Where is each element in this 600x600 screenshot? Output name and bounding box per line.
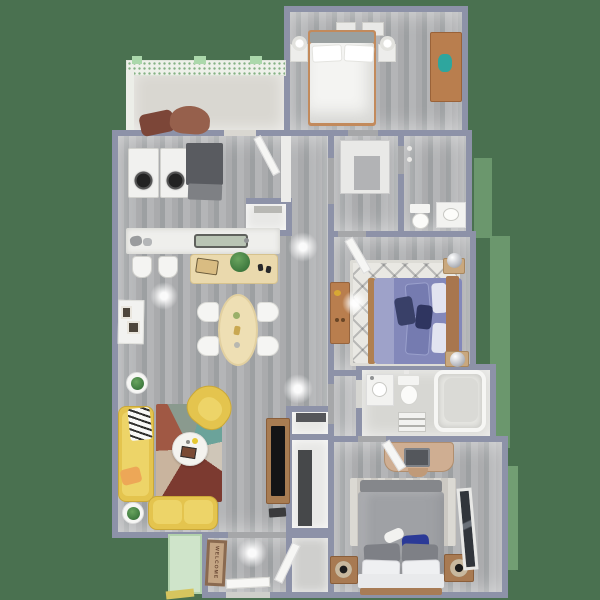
- fridge: [186, 143, 223, 185]
- bath1-sink: [443, 208, 459, 221]
- pantry-shelf: [254, 206, 282, 213]
- b3-foot-ruffle: [358, 574, 444, 588]
- entry-step-yellow: [166, 589, 195, 600]
- dining-chair-ne: [257, 302, 279, 322]
- cutting-board: [195, 258, 219, 276]
- bath2-toilet-tank: [398, 376, 419, 385]
- centerpiece-3: [234, 342, 240, 348]
- balcony-door-opening: [224, 130, 256, 136]
- sofa-throw: [127, 407, 152, 441]
- fridge-front: [188, 183, 223, 200]
- kitchen-faucet: [244, 238, 249, 243]
- b2-dresser-knob-2: [341, 318, 345, 322]
- desk-frame-1: [121, 306, 132, 319]
- bath2-toilet-bowl: [400, 385, 418, 405]
- balcony-screen-wall: [126, 60, 286, 76]
- island-plant: [230, 252, 250, 272]
- welcome-mat: WELCOME: [205, 540, 227, 587]
- balcony-rail-left: [126, 70, 134, 130]
- b1-lamp-right: [380, 36, 395, 51]
- centerpiece-1: [233, 312, 240, 319]
- closet-a-shelf: [296, 413, 326, 422]
- b1-pillow-right: [344, 44, 375, 63]
- kitchen-sink: [194, 234, 248, 248]
- dining-chair-sw: [197, 336, 219, 356]
- dryer-door: [165, 170, 186, 191]
- linen-shelf-notch: [354, 156, 380, 190]
- closet-b-strip: [298, 450, 312, 526]
- stool-2: [158, 256, 178, 278]
- bedroom-1-door: [348, 130, 378, 136]
- plant-2: [127, 507, 140, 520]
- coffee-table-lemon: [192, 438, 198, 444]
- balcony-post-3: [250, 56, 262, 64]
- shaker-1: [258, 264, 264, 272]
- hall-strip: [334, 370, 356, 436]
- coffee-table-dot: [186, 440, 190, 444]
- front-door-opening: [226, 592, 270, 598]
- b1-dresser-decor: [438, 54, 452, 72]
- plant-1: [131, 377, 144, 390]
- balcony-post-1: [132, 56, 142, 64]
- bedroom-3-door: [358, 436, 386, 442]
- washer-door: [133, 170, 154, 191]
- bathroom-2-door: [356, 380, 362, 408]
- balcony-post-2: [194, 56, 206, 64]
- tv: [271, 426, 285, 496]
- bath1-hook-1: [407, 146, 412, 151]
- hall-kitchen-opening: [328, 158, 334, 204]
- dining-chair-se: [257, 336, 279, 356]
- hall-strip-opening: [328, 384, 334, 424]
- coffee-table-frame: [180, 446, 197, 459]
- console-box: [269, 507, 287, 517]
- b1-pillow-left: [312, 44, 343, 63]
- b2-pillow-navy-2: [415, 304, 433, 330]
- bg-accent-1: [474, 158, 492, 238]
- loveseat-cushion-2: [184, 500, 213, 524]
- desk-frame-2: [127, 321, 140, 334]
- bath2-sink: [372, 382, 387, 397]
- b2-lamp-top: [447, 253, 462, 268]
- bathroom-1-door: [398, 146, 404, 174]
- b3-monitor: [404, 448, 430, 467]
- bath2-tub-basin: [444, 378, 478, 422]
- b1-lamp-left: [292, 36, 307, 51]
- bath1-hook-2: [407, 157, 412, 162]
- bath1-toilet-bowl: [412, 213, 429, 229]
- dining-chair-nw: [197, 302, 219, 322]
- kettle-2: [143, 238, 152, 246]
- entry-mat-green: [168, 534, 202, 594]
- b1-headboard: [310, 32, 374, 43]
- b2-dresser-decor: [334, 290, 341, 296]
- b2-dresser-knob-1: [335, 318, 339, 322]
- bath2-faucet: [370, 376, 374, 380]
- b3-foot-frame: [360, 588, 442, 595]
- floor-plan: WELCOME: [0, 0, 600, 600]
- stool-1: [132, 256, 152, 278]
- kitchen-partition: [281, 136, 291, 202]
- living-vestibule-opening: [228, 532, 286, 538]
- loveseat-cushion-1: [153, 500, 182, 524]
- b2-lamp-bottom: [450, 352, 465, 367]
- b3-speaker-left: [335, 561, 352, 578]
- bath2-hook: [404, 370, 409, 374]
- b2-comforter-fold: [374, 278, 394, 364]
- bath1-toilet-tank: [410, 204, 430, 213]
- bath2-shelf-steps: [398, 412, 426, 432]
